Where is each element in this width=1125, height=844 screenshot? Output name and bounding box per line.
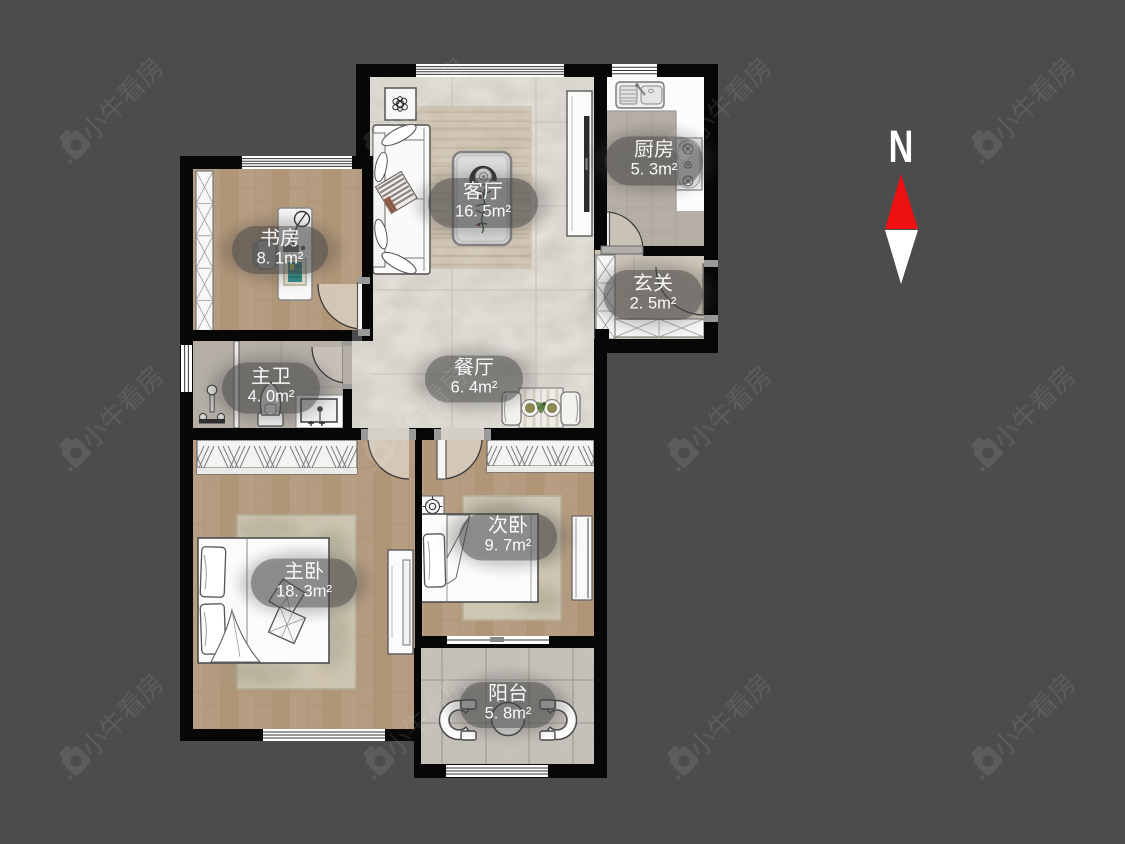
svg-text:4. 0m²: 4. 0m² xyxy=(248,388,295,406)
svg-text:8. 1m²: 8. 1m² xyxy=(257,250,304,268)
svg-text:16. 5m²: 16. 5m² xyxy=(455,203,511,221)
svg-text:9. 7m²: 9. 7m² xyxy=(485,537,532,555)
svg-text:5. 8m²: 5. 8m² xyxy=(485,705,532,723)
svg-text:N: N xyxy=(889,123,914,173)
svg-text:5. 3m²: 5. 3m² xyxy=(631,161,678,179)
svg-text:18. 3m²: 18. 3m² xyxy=(276,583,332,601)
svg-text:2. 5m²: 2. 5m² xyxy=(630,295,677,313)
